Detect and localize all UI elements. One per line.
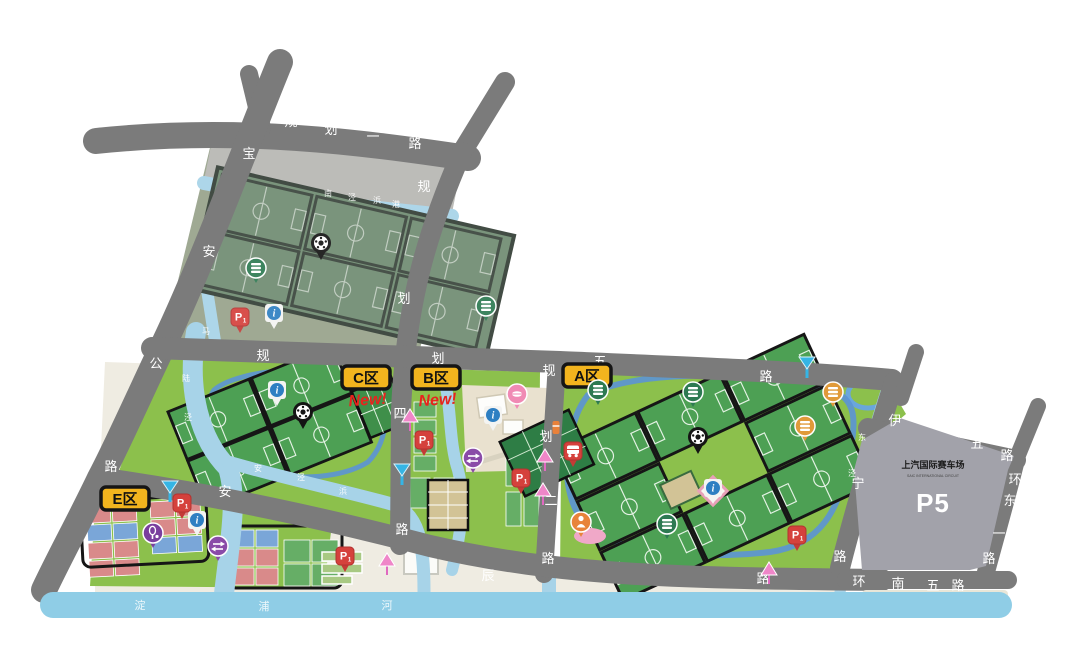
- svg-text:路: 路: [951, 578, 964, 593]
- svg-text:规: 规: [256, 348, 269, 363]
- svg-text:E区: E区: [112, 491, 137, 508]
- svg-text:安: 安: [202, 244, 215, 259]
- p5-subtitle: SAIC INTERNATIONAL CIRCUIT: [907, 474, 960, 478]
- svg-text:路: 路: [833, 549, 846, 564]
- svg-text:泾: 泾: [848, 469, 856, 478]
- p5-parking-area: 上汽国际赛车场 SAIC INTERNATIONAL CIRCUIT P5: [854, 418, 1014, 570]
- svg-text:划: 划: [539, 429, 552, 444]
- svg-text:南: 南: [935, 416, 948, 431]
- svg-text:五: 五: [926, 578, 939, 593]
- map-canvas: P 1 i: [0, 0, 1080, 664]
- svg-text:环: 环: [1008, 472, 1021, 487]
- svg-text:东: 东: [1003, 493, 1016, 508]
- dianpu-river: 淀 浦 河: [40, 592, 1012, 618]
- svg-text:辰: 辰: [481, 568, 494, 583]
- svg-text:五: 五: [970, 436, 983, 451]
- zone-b-new-tag: New!: [418, 391, 458, 411]
- svg-text:泾: 泾: [348, 193, 356, 202]
- svg-text:划: 划: [324, 122, 337, 137]
- gate-pin-orange: [553, 421, 560, 434]
- svg-text:安: 安: [254, 463, 262, 473]
- svg-text:马: 马: [202, 327, 210, 336]
- svg-text:河: 河: [382, 599, 393, 612]
- svg-text:路: 路: [982, 551, 995, 566]
- svg-text:浜: 浜: [373, 195, 381, 205]
- svg-text:划: 划: [431, 351, 444, 366]
- svg-text:南: 南: [891, 576, 904, 591]
- svg-text:南: 南: [324, 188, 332, 198]
- svg-text:C区: C区: [353, 370, 379, 387]
- svg-text:路: 路: [104, 459, 117, 474]
- svg-text:划: 划: [397, 291, 410, 306]
- zone-badge-b: B区 New!: [412, 366, 460, 410]
- svg-text:港: 港: [392, 199, 400, 209]
- svg-text:路: 路: [408, 136, 421, 151]
- svg-text:一: 一: [992, 526, 1005, 541]
- svg-text:宁: 宁: [851, 476, 864, 491]
- svg-text:规: 规: [542, 363, 555, 378]
- svg-text:规: 规: [284, 114, 297, 129]
- p5-title: 上汽国际赛车场: [901, 459, 964, 470]
- svg-text:规: 规: [417, 179, 430, 194]
- svg-text:浦: 浦: [259, 600, 270, 613]
- svg-text:泾: 泾: [297, 473, 305, 482]
- svg-text:环: 环: [852, 574, 865, 589]
- svg-text:东: 东: [858, 432, 866, 442]
- zone-badge-e: E区: [101, 487, 149, 510]
- zone-c-new-tag: New!: [348, 391, 388, 411]
- svg-text:路: 路: [759, 369, 772, 384]
- zone-badge-c: C区 New!: [342, 366, 390, 410]
- svg-text:淀: 淀: [135, 598, 146, 612]
- svg-text:陆: 陆: [182, 373, 190, 383]
- p5-label: P5: [916, 488, 950, 518]
- svg-text:路: 路: [1000, 448, 1013, 463]
- svg-text:泾: 泾: [184, 413, 192, 422]
- svg-text:路: 路: [541, 551, 554, 566]
- sports-park-map: P 1 i: [0, 0, 1080, 664]
- svg-text:路: 路: [395, 522, 408, 537]
- svg-text:环: 环: [908, 402, 921, 417]
- svg-text:伊: 伊: [888, 413, 901, 428]
- svg-text:公: 公: [149, 356, 162, 371]
- svg-text:B区: B区: [423, 370, 449, 387]
- svg-text:宝: 宝: [242, 146, 255, 161]
- tan-courts: [428, 480, 468, 530]
- svg-text:安: 安: [218, 484, 231, 499]
- svg-text:一: 一: [366, 129, 379, 144]
- svg-text:浜: 浜: [339, 486, 347, 496]
